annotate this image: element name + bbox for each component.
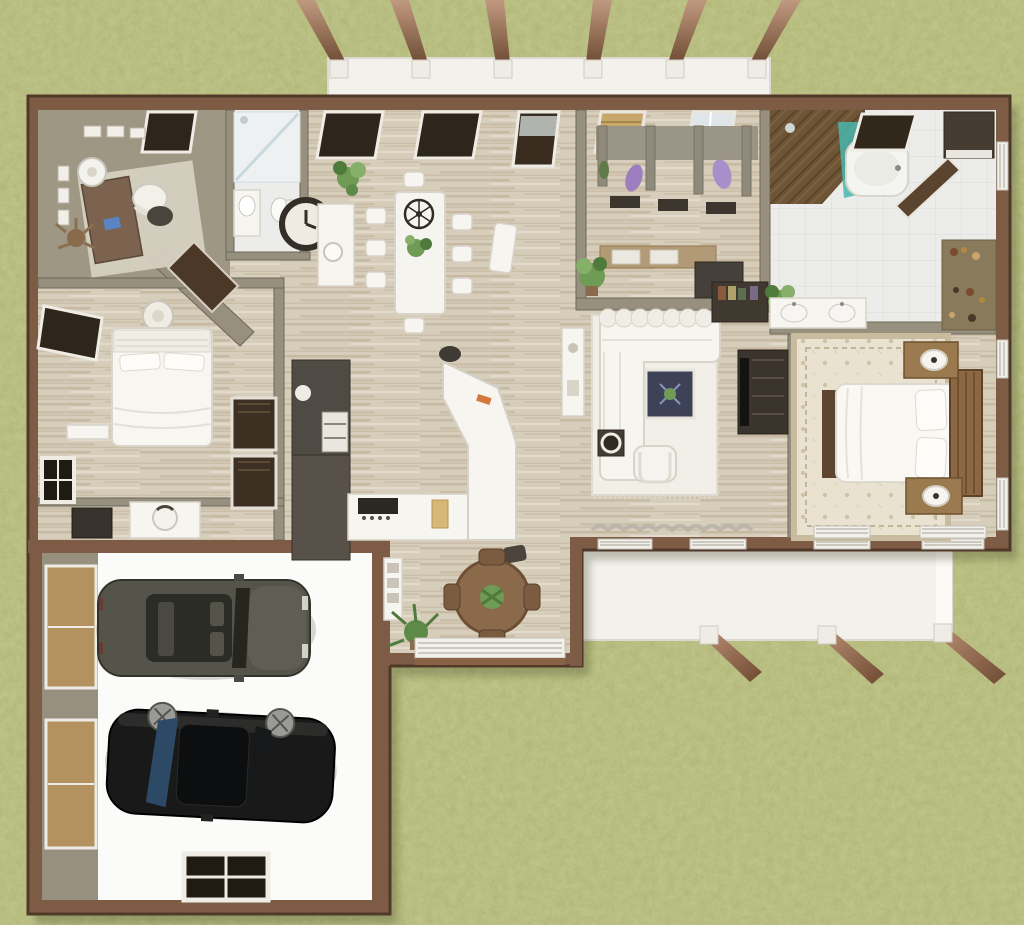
- garage-side-window-2: [46, 720, 96, 848]
- front-porch-slab: [328, 58, 770, 100]
- coffee-table: [646, 370, 694, 418]
- bookshelf: [712, 282, 768, 322]
- shower-head: [785, 123, 795, 133]
- pillow-1: [915, 389, 947, 431]
- side-window-master-2: [997, 478, 1008, 530]
- wall-bath-bottom: [226, 252, 310, 260]
- kitchen-pantry-cabinets: [292, 455, 350, 560]
- suv-hood: [248, 586, 306, 670]
- armchair: [634, 446, 676, 482]
- rear-window-living-1: [598, 539, 652, 549]
- kitchen-cutting-board: [432, 500, 448, 528]
- patio-beam-base-3: [934, 624, 952, 642]
- bedroom-bed: [112, 328, 212, 446]
- pergola-base-6: [748, 60, 766, 78]
- pergola-base-4: [584, 60, 602, 78]
- side-window-master-1: [997, 340, 1008, 378]
- masterbath-window-dark: [852, 114, 916, 150]
- double-vanity: [770, 298, 866, 328]
- side-console-table: [562, 328, 584, 416]
- wall-nook-right: [570, 540, 582, 666]
- patio-beam-base-2: [818, 626, 836, 644]
- tub-faucet: [895, 165, 901, 171]
- nook-table: [455, 560, 529, 634]
- patio-beam-base-1: [700, 626, 718, 644]
- garage-rear-window: [184, 854, 268, 900]
- dining-console: [318, 204, 354, 286]
- car-sedan: [102, 700, 340, 828]
- coffee-table-plant: [664, 388, 676, 400]
- pergola-base-5: [666, 60, 684, 78]
- nook-shelf: [384, 558, 402, 620]
- kitchen-wall-oven: [322, 412, 348, 452]
- nightstand-top: [904, 342, 958, 378]
- kitchen-cooktop: [358, 498, 398, 514]
- lamp-end-table: [598, 430, 624, 456]
- nightstand-bottom: [906, 478, 962, 514]
- floorplan-render: [0, 0, 1024, 925]
- bedroom-side-window: [42, 458, 74, 502]
- suv-mirror-bottom: [234, 675, 244, 682]
- pergola-base-3: [494, 60, 512, 78]
- kitchen-dish: [295, 385, 311, 401]
- wall-office-bath: [226, 110, 234, 252]
- island-stool: [439, 346, 461, 362]
- garage-side-window-1: [46, 566, 96, 688]
- toiletry-cabinet: [942, 240, 996, 330]
- console-vase: [324, 243, 342, 261]
- shower-head-icon: [240, 116, 248, 124]
- dressing-dresser: [72, 508, 112, 538]
- dining-window-2: [415, 112, 481, 158]
- front-door: [513, 112, 559, 166]
- sedan-roof-glass: [176, 724, 250, 808]
- dining-table: [395, 192, 445, 314]
- pergola-base-1: [330, 60, 348, 78]
- dining-window-1: [317, 112, 383, 158]
- bathroom-sink: [239, 196, 255, 216]
- back-patio-slab: [582, 548, 952, 640]
- car-suv: [96, 574, 316, 682]
- hanging-bag: [599, 161, 609, 179]
- office-front-window: [142, 112, 196, 152]
- kitchen-counter: [348, 494, 470, 540]
- sedan-mirror-bottom: [201, 814, 213, 822]
- media-console: [738, 350, 788, 434]
- dressing-chair: [153, 506, 177, 530]
- side-window-bath: [997, 142, 1008, 190]
- suv-mirror-top: [234, 574, 244, 581]
- master-bedroom: [794, 336, 986, 538]
- bedroom-wall-shelf: [67, 425, 109, 439]
- corner-wardrobe: [944, 112, 994, 158]
- pillow-2: [915, 437, 947, 479]
- tv-screen: [740, 358, 749, 426]
- sedan-mirror-top: [206, 709, 218, 717]
- halfwall-living: [576, 298, 716, 310]
- wall-office-bedroom: [38, 278, 284, 288]
- office-desk-lamp: [78, 158, 106, 186]
- master-bed: [836, 370, 982, 496]
- bedroom-ceiling-light: [143, 301, 173, 331]
- rear-window-living-2: [690, 539, 746, 549]
- floorplan-stage: [0, 0, 1024, 925]
- nook-window: [415, 638, 565, 665]
- pergola-base-2: [412, 60, 430, 78]
